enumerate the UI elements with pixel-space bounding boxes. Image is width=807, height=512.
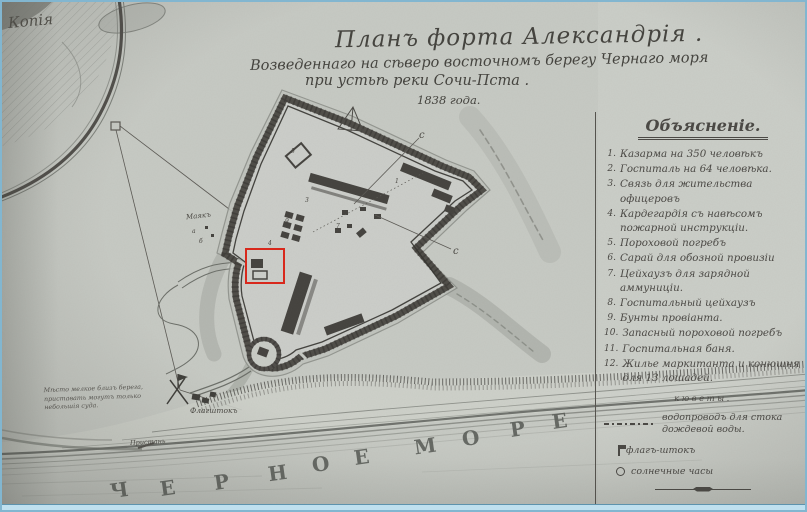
legend-item: 6.Сарай для обозной провизіи	[604, 251, 802, 265]
reference-letter: б	[199, 238, 203, 245]
flagstaff-key: флагъ-штокъ	[604, 445, 802, 457]
legend-item: 4.Кардегардія съ навѣсомъ пожарной инстр…	[604, 207, 802, 235]
building-number: 1	[395, 178, 399, 185]
legend-item: 2.Госпиталь на 64 человѣка.	[604, 162, 802, 176]
legend-item: 8.Госпитальный цейхаузъ	[604, 296, 802, 310]
sundial-symbol	[616, 467, 625, 476]
sea-name-letter: Р	[212, 469, 230, 495]
reference-letter: а	[192, 228, 196, 235]
legend-item: 10.Запасный пороховой погребъ	[604, 326, 802, 340]
legend-symbol-key: кюветы. водопроводъ для стока дождевой в…	[604, 394, 802, 492]
legend-heading: Объясненіе.	[638, 116, 769, 140]
sea-name-letter: Н	[266, 460, 288, 486]
sea-name-letter: О	[460, 425, 481, 451]
legend-panel: Объясненіе. 1.Казарма на 350 человѣкъ 2.…	[604, 116, 802, 386]
legend-items: 1.Казарма на 350 человѣкъ 2.Госпиталь на…	[604, 147, 802, 385]
reference-letter-c: с	[419, 130, 425, 141]
building-number: 7	[336, 223, 340, 230]
map-date: 1838 года.	[417, 93, 480, 107]
legend-item: 1.Казарма на 350 человѣкъ	[604, 147, 802, 161]
flagstaff-label: Флагштокъ	[190, 406, 237, 415]
building-number: 3	[305, 197, 309, 204]
legend-divider	[595, 112, 596, 508]
sea-name-letter: Е	[550, 408, 568, 434]
shore-note: Мѣсто мелкое близъ берега, приставать мо…	[44, 383, 165, 413]
scanned-map-page: Копія Планъ форта Александрія . Возведен…	[0, 0, 807, 512]
sea-name-letter: Е	[158, 475, 176, 501]
highlight-rectangle	[245, 248, 285, 284]
legend-item: 7.Цейхаузъ для зарядной аммуниціи.	[604, 267, 802, 295]
legend-item: 3.Связь для жительства офицеровъ	[604, 177, 802, 205]
legend-item: 5.Пороховой погребъ	[604, 236, 802, 250]
water-conduit-key: водопроводъ для стока дождевой воды.	[604, 412, 802, 436]
reference-letter-c: с	[453, 246, 459, 257]
sea-name-letter: О	[310, 451, 331, 477]
building-number: 9	[285, 218, 289, 225]
map-subtitle-2: при устьѣ реки Сочи-Пста .	[305, 73, 529, 89]
dashdot-line-symbol	[604, 423, 656, 425]
sea-name-letter: Ч	[108, 477, 129, 503]
building-number: 5	[291, 148, 295, 155]
legend-item: 12.Жилье маркитанта и конюшня для 13 лош…	[604, 357, 802, 385]
scan-border-strip	[2, 504, 805, 510]
symbol-key-heading: кюветы.	[604, 394, 802, 404]
building-number: 2	[299, 290, 303, 297]
sea-name-letter: Р	[508, 416, 526, 442]
sea-name-letter: Е	[352, 444, 370, 470]
sea-name-letter: М	[412, 433, 437, 460]
divider-ornament	[655, 487, 751, 492]
legend-item: 9.Бунты провіанта.	[604, 311, 802, 325]
sundial-key: солнечные часы	[604, 466, 802, 478]
building-number: 4	[268, 240, 272, 247]
legend-item: 11.Госпитальная баня.	[604, 342, 802, 356]
flagstaff-symbol	[618, 445, 620, 456]
